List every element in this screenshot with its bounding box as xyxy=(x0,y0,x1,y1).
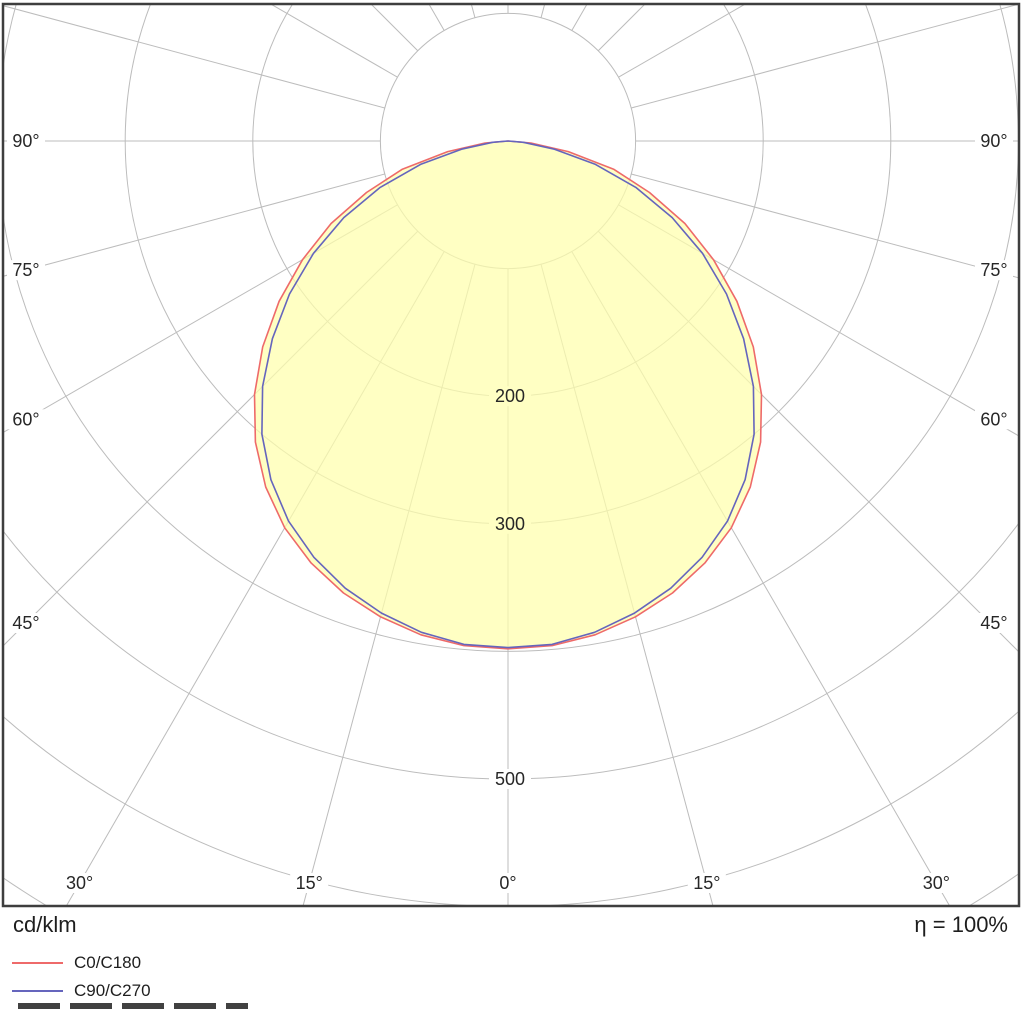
tick-label: 60° xyxy=(12,409,39,429)
c0-c180-line-swatch xyxy=(12,962,63,964)
legend-item-c90-c270: C90/C270 xyxy=(12,982,151,1000)
legend-label: C0/C180 xyxy=(74,954,141,972)
tick-label: 200 xyxy=(495,386,525,406)
tick-label: 45° xyxy=(980,613,1007,633)
tick-label: 15° xyxy=(693,873,720,893)
tick-label: 60° xyxy=(980,409,1007,429)
photometric-diagram: 90°90°75°75°60°60°45°45°30°15°0°15°30°20… xyxy=(0,0,1024,1009)
polar-intensity-chart: 90°90°75°75°60°60°45°45°30°15°0°15°30°20… xyxy=(0,0,1024,1009)
tick-label: 500 xyxy=(495,769,525,789)
efficiency-label: η = 100% xyxy=(914,912,1008,938)
tick-label: 30° xyxy=(66,873,93,893)
tick-label: 90° xyxy=(12,131,39,151)
tick-label: 45° xyxy=(12,613,39,633)
c90-c270-line-swatch xyxy=(12,990,63,992)
tick-label: 0° xyxy=(499,873,516,893)
legend-item-c0-c180: C0/C180 xyxy=(12,954,141,972)
legend-label: C90/C270 xyxy=(74,982,151,1000)
tick-label: 30° xyxy=(923,873,950,893)
cropped-text-remnant xyxy=(18,1003,248,1009)
units-label: cd/klm xyxy=(13,912,77,938)
tick-label: 75° xyxy=(980,260,1007,280)
tick-label: 300 xyxy=(495,514,525,534)
tick-label: 15° xyxy=(296,873,323,893)
tick-label: 75° xyxy=(12,260,39,280)
tick-label: 90° xyxy=(980,131,1007,151)
